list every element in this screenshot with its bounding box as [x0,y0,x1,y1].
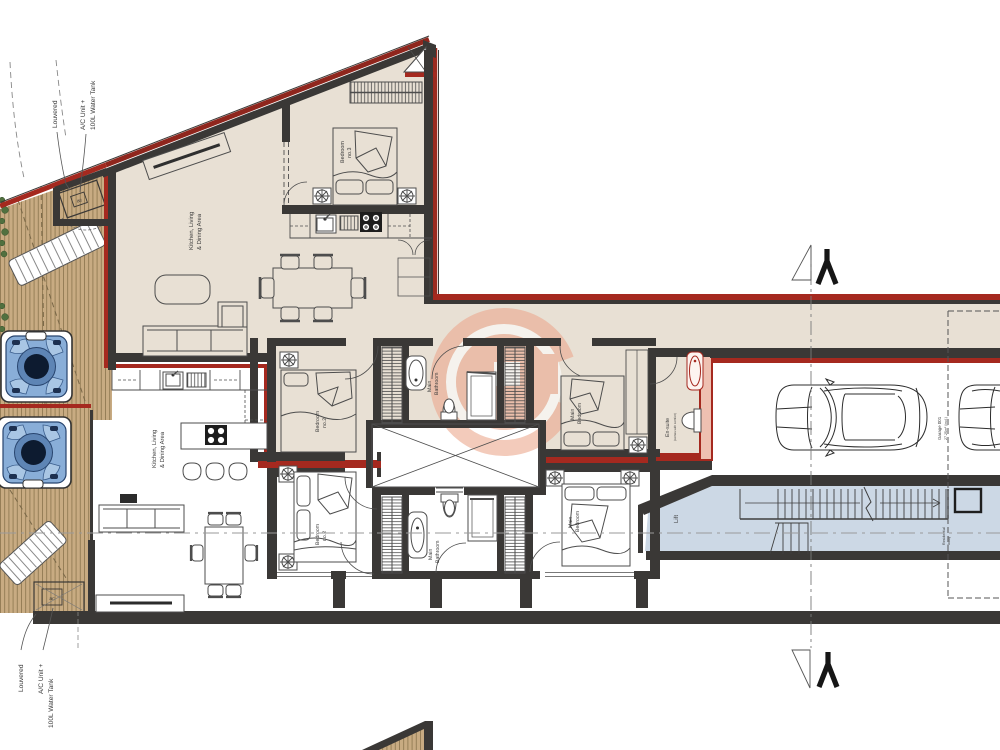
svg-text:Garage 001: Garage 001 [937,416,942,440]
svg-text:En-suite: En-suite [665,418,671,437]
svg-text:100L Water Tank: 100L Water Tank [90,80,97,130]
svg-text:Kitchen, Living: Kitchen, Living [151,430,158,468]
svg-text:& Dining Area: & Dining Area [196,213,203,250]
svg-text:Louvered: Louvered [52,100,59,128]
svg-text:Bedroom: Bedroom [575,511,581,532]
svg-text:no.2: no.2 [322,531,328,541]
svg-text:A/C Unit +: A/C Unit + [80,100,87,130]
svg-text:100L Water Tank: 100L Water Tank [48,678,55,728]
svg-text:no.3: no.3 [347,148,353,159]
svg-text:27.25m² (incl.): 27.25m² (incl.) [944,417,948,440]
svg-text:Main: Main [570,409,576,420]
svg-text:Residential: Residential [942,527,946,545]
svg-text:Bathroom: Bathroom [434,373,440,396]
svg-text:Main: Main [428,549,434,560]
svg-text:Bedroom: Bedroom [315,411,321,432]
svg-text:Lift: Lift [673,515,680,523]
svg-text:Bedroom: Bedroom [340,141,346,163]
svg-text:(comes with comfort): (comes with comfort) [673,413,677,441]
svg-text:no.2: no.2 [322,418,328,428]
svg-text:Main: Main [427,381,433,392]
svg-text:Kitchen, Living: Kitchen, Living [188,212,195,250]
svg-text:& Dining Area: & Dining Area [159,431,166,468]
svg-text:A/C Unit +: A/C Unit + [38,664,45,694]
svg-text:Bedroom: Bedroom [315,524,321,545]
svg-text:Main: Main [568,517,574,528]
svg-text:Bedroom: Bedroom [577,403,583,424]
svg-text:Louvered: Louvered [18,664,25,692]
svg-text:Bathroom: Bathroom [435,541,441,564]
